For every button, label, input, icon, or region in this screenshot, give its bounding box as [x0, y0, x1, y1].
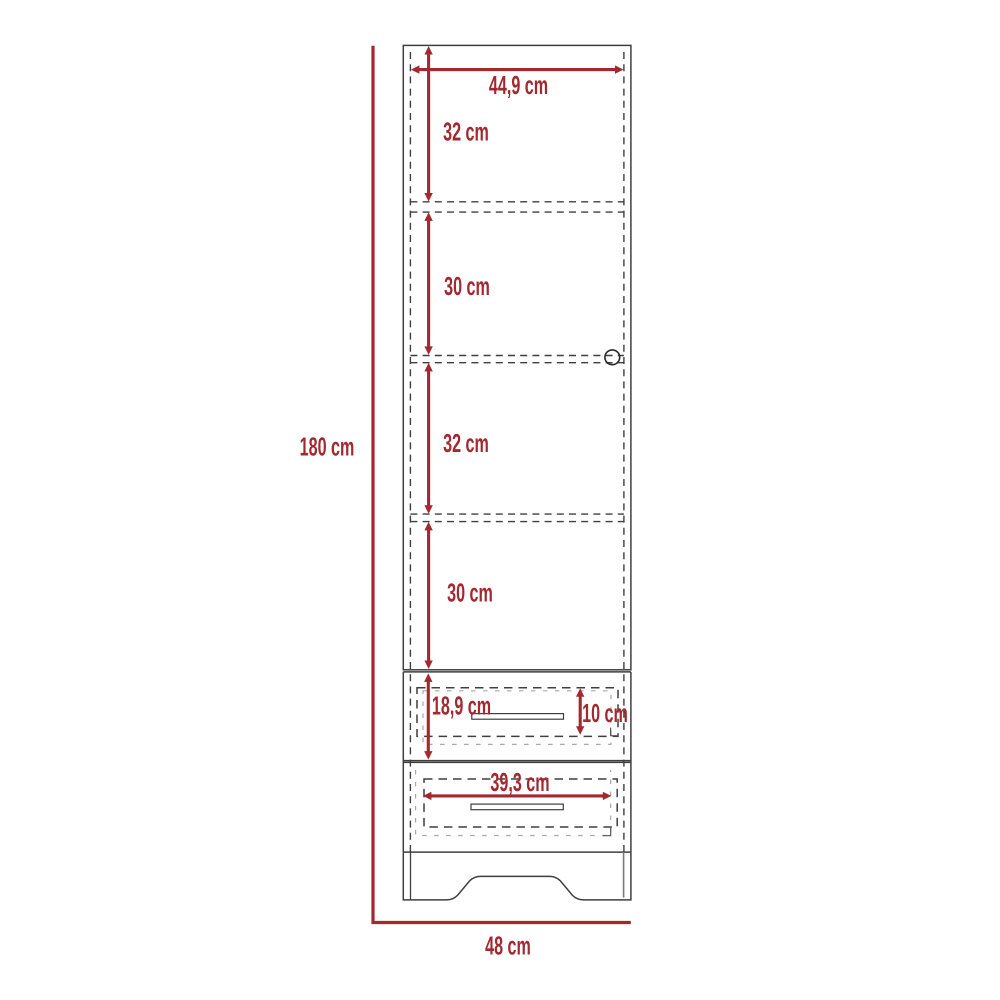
svg-text:18,9 cm: 18,9 cm [432, 690, 491, 720]
svg-text:39,3 cm: 39,3 cm [490, 767, 549, 797]
svg-text:32 cm: 32 cm [443, 116, 489, 146]
svg-text:180 cm: 180 cm [300, 431, 355, 461]
svg-text:44,9 cm: 44,9 cm [489, 70, 548, 100]
svg-text:10 cm: 10 cm [582, 698, 628, 728]
svg-text:30 cm: 30 cm [444, 271, 490, 301]
svg-text:32 cm: 32 cm [443, 428, 489, 458]
svg-text:48 cm: 48 cm [485, 930, 531, 960]
svg-text:30 cm: 30 cm [447, 577, 493, 607]
